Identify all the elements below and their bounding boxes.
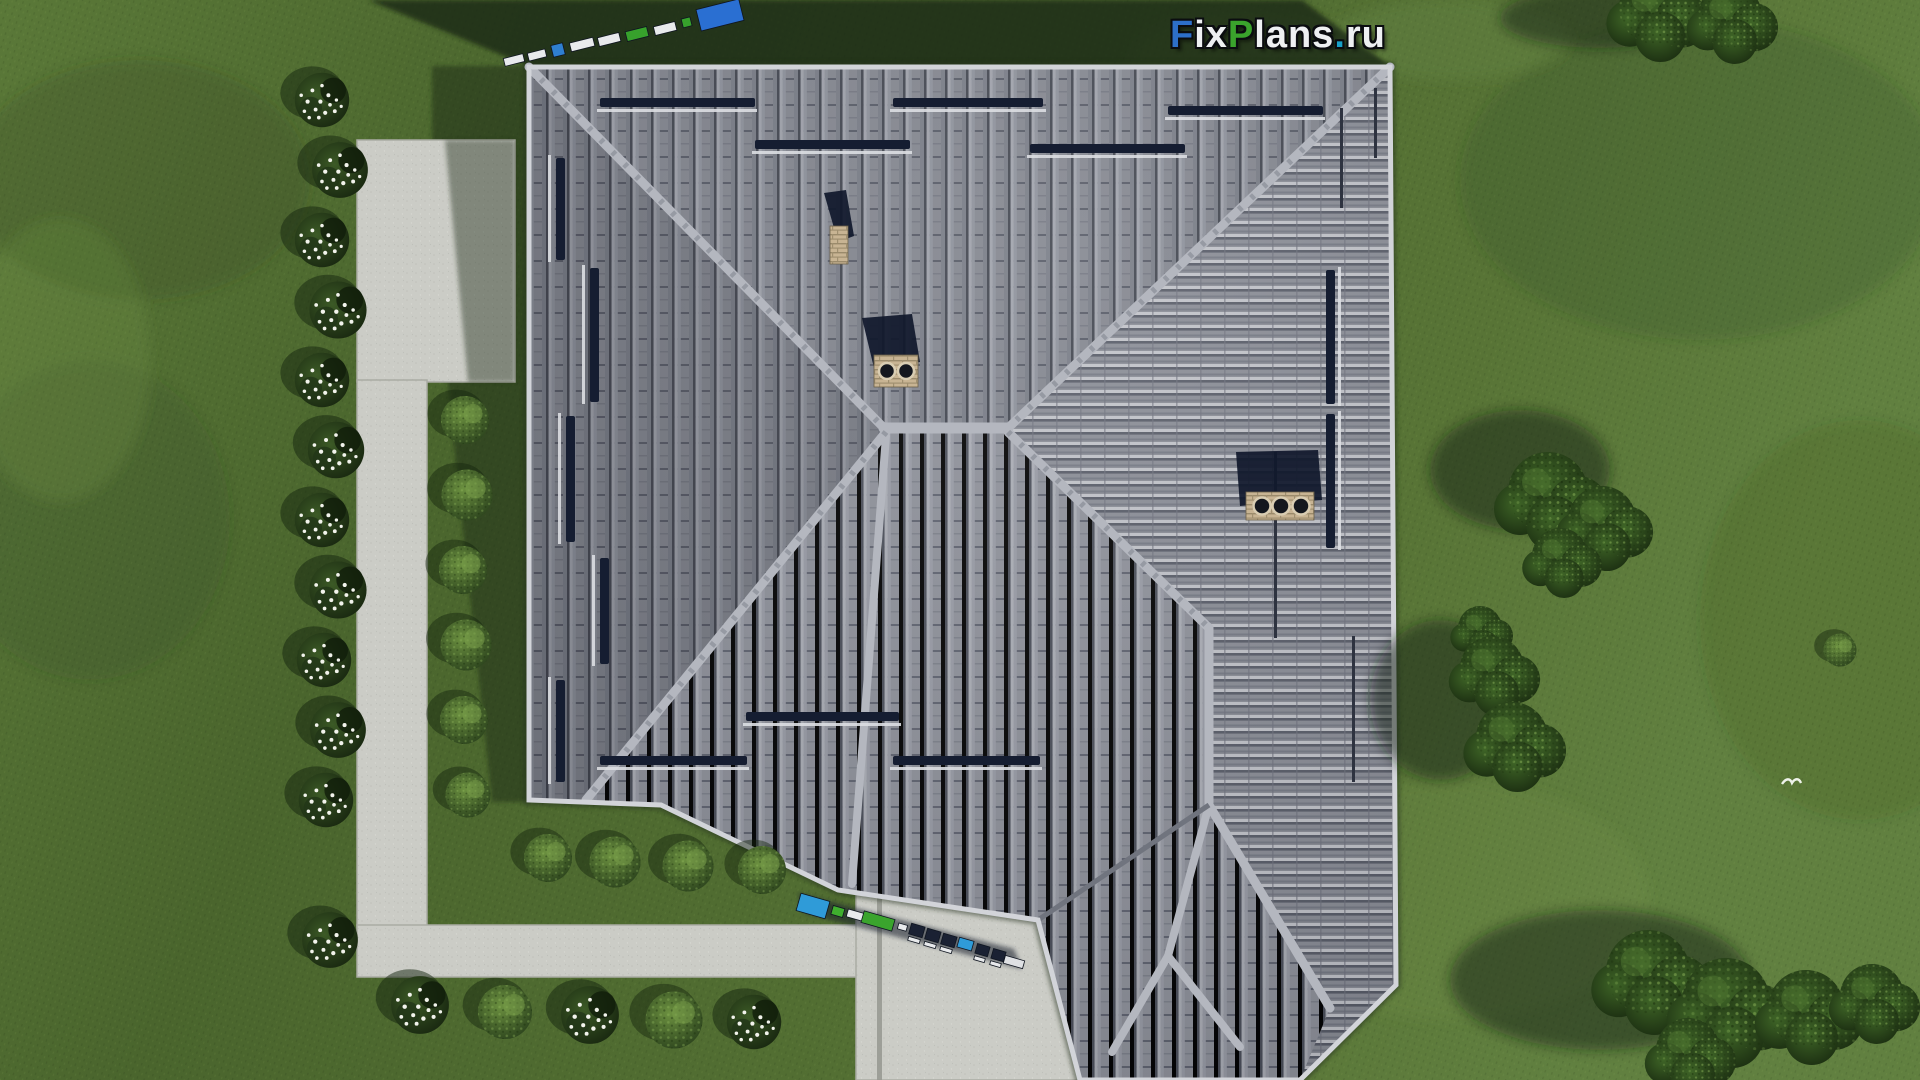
logo-block [681,17,692,28]
chimney-brick [830,226,848,264]
garden-path-horizontal [357,925,880,977]
flue [898,363,914,379]
chimney-triple [1236,450,1322,520]
logo-letter-f: F [1170,14,1194,57]
flue [879,363,895,379]
flue [1273,498,1290,515]
logo-letter-p: P [1228,14,1254,57]
logo-letters-ru: ru [1346,14,1386,57]
logo-dot: . [1334,14,1346,57]
logo-letters-lans: lans [1254,14,1334,57]
site-logo-watermark: F ix P lans . ru [1170,14,1386,57]
logo-letters-ix: ix [1194,14,1228,57]
aerial-house-render: F ix P lans . ru [0,0,1920,1080]
logo-block [551,43,566,58]
flue [1254,498,1271,515]
render-canvas [0,0,1920,1080]
flue [1293,498,1310,515]
garden-path-vertical [357,380,427,928]
